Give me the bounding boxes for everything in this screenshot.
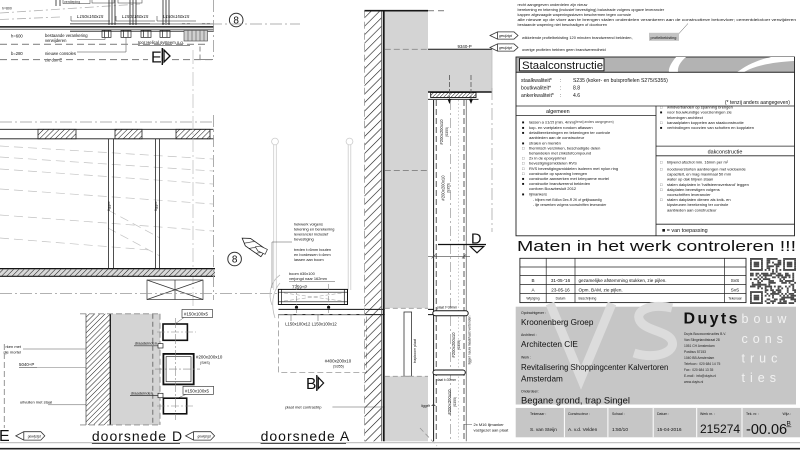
svg-text:B: B	[306, 376, 316, 393]
svg-text:bouw: bouw	[742, 312, 792, 326]
svg-text:ligger: ligger	[153, 200, 158, 210]
svg-text:www.duyts.nl: www.duyts.nl	[684, 380, 704, 384]
svg-text:#200x200x10: #200x200x10	[439, 119, 444, 145]
svg-text:rken met: rken met	[5, 344, 21, 349]
svg-text:■ = van toepassing: ■ = van toepassing	[662, 228, 708, 234]
svg-text:S. van Steijn: S. van Steijn	[530, 427, 557, 433]
svg-text:(tenzij anders aangegeven): (tenzij anders aangegeven)	[575, 120, 614, 124]
svg-text:doorsnede A: doorsnede A	[261, 428, 351, 444]
svg-text:Architect :: Architect :	[521, 333, 537, 337]
svg-text:#200x200x10: #200x200x10	[447, 389, 452, 415]
svg-text:9340-P: 9340-P	[458, 44, 472, 49]
svg-text:uitvullen met staal: uitvullen met staal	[20, 400, 52, 405]
svg-text:S235 (koker- en buisprofielen: S235 (koker- en buisprofielen S275/S355)	[573, 78, 668, 84]
svg-text:Tekenaar: Tekenaar	[728, 297, 742, 301]
svg-text:B: B	[531, 278, 534, 283]
svg-text:Beschrijving: Beschrijving	[579, 297, 597, 301]
svg-text:Architecten CIE: Architecten CIE	[521, 340, 578, 349]
svg-text:doorsnede D: doorsnede D	[92, 428, 183, 444]
svg-text:Tek. nr. :: Tek. nr. :	[746, 412, 759, 416]
svg-text:Schaal :: Schaal :	[612, 412, 625, 416]
svg-text:Postbus 57153: Postbus 57153	[684, 350, 706, 354]
svg-text:L150x150x15: L150x150x15	[163, 14, 190, 19]
svg-text:L150x100x12: L150x100x12	[285, 322, 311, 327]
svg-text:verbindingen voorzien van scho: verbindingen voorzien van schotten en ko…	[667, 125, 754, 130]
svg-text:h=800: h=800	[2, 7, 12, 11]
svg-text:algemeen: algemeen	[546, 109, 570, 115]
svg-text:- lije verwerken volgens voors: - lije verwerken volgens voorschriften l…	[533, 203, 607, 207]
svg-text:Van Slingelandtstraat 28: Van Slingelandtstraat 28	[684, 338, 720, 342]
svg-text:Telefoon : 020 684 14 75: Telefoon : 020 684 14 75	[684, 362, 720, 366]
svg-text:verwijderen: verwijderen	[45, 38, 67, 43]
svg-text:SvS: SvS	[731, 278, 739, 283]
svg-text:dakconstructie: dakconstructie	[708, 150, 743, 156]
svg-text:Datum :: Datum :	[657, 412, 669, 416]
svg-text::: :	[560, 86, 561, 92]
svg-text:1:50/10: 1:50/10	[612, 427, 628, 433]
svg-text:lassen a ≥1/2t (min. 4mm): lassen a ≥1/2t (min. 4mm)	[529, 119, 576, 124]
svg-text:Duyts: Duyts	[684, 311, 740, 328]
svg-text:8: 8	[232, 255, 238, 266]
svg-text:1040 BB Amsterdam: 1040 BB Amsterdam	[684, 356, 714, 360]
svg-text:ligger nauw maat/vast verbinde: ligger nauw maat/vast verbinden	[468, 315, 472, 364]
svg-text:gezamelijke afstemming stukken: gezamelijke afstemming stukken, zie pijl…	[579, 278, 667, 283]
svg-text:Kroonenberg Groep: Kroonenberg Groep	[521, 318, 594, 327]
svg-text:overige profielen hebben geen: overige profielen hebben geen brandweren…	[522, 47, 606, 52]
svg-text:- blijven met Edilon Dex-R 2K: - blijven met Edilon Dex-R 2K of gelijkw…	[533, 198, 602, 202]
svg-text:plaat t=30mm: plaat t=30mm	[436, 378, 456, 382]
svg-text:(S355): (S355)	[333, 365, 344, 369]
svg-text:plaat met contrastrip: plaat met contrastrip	[285, 405, 322, 410]
svg-text:(S355): (S355)	[447, 183, 451, 193]
svg-text:wikkelende profielbekisting 12: wikkelende profielbekisting 120 minuten …	[522, 35, 633, 40]
svg-text:Datum: Datum	[556, 297, 566, 301]
svg-text:Staalconstructie: Staalconstructie	[522, 60, 603, 72]
svg-text:blijvend afschot min. 16mm per: blijvend afschot min. 16mm per m²	[667, 160, 729, 165]
svg-text:bestaande wapening niet bescha: bestaande wapening niet beschadigen of d…	[518, 22, 608, 27]
svg-text:-00.06: -00.06	[746, 422, 787, 438]
svg-text:Constructeur :: Constructeur :	[568, 412, 590, 416]
svg-text:5040+P: 5040+P	[19, 362, 34, 367]
svg-text:Duyts Bouwconstructies B.V.: Duyts Bouwconstructies B.V.	[684, 332, 726, 336]
svg-text:215274: 215274	[700, 422, 740, 436]
svg-text:aanbieden aan constructeur: aanbieden aan constructeur	[667, 207, 717, 212]
svg-text:Werk nr. :: Werk nr. :	[700, 412, 715, 416]
svg-text:Revitalisering Shoppingcenter: Revitalisering Shoppingcenter Kalvertore…	[521, 363, 668, 372]
svg-text:gewijzigd: gewijzigd	[198, 435, 211, 439]
svg-text:L150x100x12: L150x100x12	[312, 322, 338, 327]
svg-text:4.6: 4.6	[573, 93, 580, 99]
svg-text:lijmankers: lijmankers	[529, 191, 547, 196]
svg-text:#200x200x10: #200x200x10	[451, 332, 456, 358]
svg-text:15-04-2016: 15-04-2016	[657, 427, 682, 433]
svg-text:nieuwe consoles: nieuwe consoles	[45, 51, 76, 56]
svg-text:profielbekisting: profielbekisting	[651, 35, 677, 40]
svg-text:E-mail : info@duyts.nl: E-mail : info@duyts.nl	[684, 374, 716, 378]
svg-text:lassen aan boom: lassen aan boom	[294, 257, 324, 262]
svg-text:verjongd naar 162mm: verjongd naar 162mm	[289, 276, 327, 281]
svg-text:Opm. BAM, zie pijlen.: Opm. BAM, zie pijlen.	[579, 287, 623, 292]
svg-text:Begane grond, trap Singel: Begane grond, trap Singel	[521, 395, 630, 406]
svg-text:Fax : 020 684 13 35: Fax : 020 684 13 35	[684, 368, 713, 372]
svg-text:Maten in het werk controleren: Maten in het werk controleren !!!	[517, 239, 796, 255]
svg-text:(S355): (S355)	[457, 340, 461, 350]
svg-text:8.8: 8.8	[573, 86, 580, 92]
svg-text:vastgezet aan plaat: vastgezet aan plaat	[474, 428, 510, 433]
svg-text:31-05-'16: 31-05-'16	[551, 278, 571, 283]
svg-text:Wijz.:: Wijz.:	[782, 412, 791, 416]
svg-text:L150x150x15: L150x150x15	[77, 14, 104, 19]
svg-text:23-05-16: 23-05-16	[551, 287, 570, 292]
svg-text:truc: truc	[742, 352, 783, 366]
svg-text:ankerkwaliteit*: ankerkwaliteit*	[521, 93, 554, 99]
svg-text::: :	[560, 78, 561, 84]
svg-text:draadeinden: draadeinden	[131, 390, 153, 395]
svg-text:#400x200x10: #400x200x10	[325, 359, 352, 364]
svg-text:rije mortel: rije mortel	[3, 350, 21, 355]
svg-text:Tekenaar :: Tekenaar :	[530, 412, 546, 416]
svg-text:h=600: h=600	[11, 33, 23, 38]
svg-text:E: E	[151, 50, 162, 67]
svg-text::: :	[560, 93, 561, 99]
svg-text:draadeinden: draadeinden	[135, 341, 157, 346]
svg-text:gewijzigd: gewijzigd	[28, 435, 41, 439]
svg-text:(SHS): (SHS)	[200, 361, 210, 365]
svg-text:#200x200x10: #200x200x10	[196, 355, 223, 360]
svg-text:#150x100x5: #150x100x5	[184, 312, 208, 317]
svg-text:plaat t=30mm: plaat t=30mm	[437, 306, 457, 310]
svg-text:gewijzigd: gewijzigd	[499, 46, 512, 50]
svg-text:(* tenzij anders aangegeven): (* tenzij anders aangegeven)	[725, 100, 790, 106]
svg-text:ligger: ligger	[106, 200, 111, 210]
svg-text:A. v.d. Velden: A. v.d. Velden	[568, 427, 598, 433]
svg-text:gewijzigd: gewijzigd	[499, 34, 512, 38]
svg-text:staalkwaliteit*: staalkwaliteit*	[521, 78, 552, 84]
svg-text:1051 CH Amsterdam: 1051 CH Amsterdam	[684, 344, 715, 348]
svg-text:(S355): (S355)	[445, 127, 449, 137]
svg-text:L150x150x15: L150x150x15	[122, 14, 149, 19]
svg-text:Wijziging: Wijziging	[526, 297, 539, 301]
svg-text:Amsterdam: Amsterdam	[521, 375, 563, 384]
svg-text:bevestiging: bevestiging	[294, 237, 314, 242]
svg-text:cons: cons	[742, 332, 788, 346]
svg-text:B: B	[787, 421, 791, 428]
svg-text:b=280: b=280	[11, 51, 23, 56]
svg-text:8: 8	[233, 16, 239, 27]
svg-text:ligger: ligger	[421, 404, 431, 408]
svg-text:#150x100x5: #150x100x5	[185, 388, 209, 393]
svg-text:SvS: SvS	[731, 287, 739, 292]
svg-text:ties: ties	[742, 371, 781, 385]
svg-text:Opdrachtgever :: Opdrachtgever :	[521, 311, 546, 315]
svg-text:(S355): (S355)	[453, 397, 457, 407]
svg-text:Werk :: Werk :	[521, 356, 531, 360]
svg-text:trapboom plaat: trapboom plaat	[413, 339, 417, 363]
svg-text:2x M16 lijmanker: 2x M16 lijmanker	[474, 422, 505, 427]
svg-text:boutkwaliteit*: boutkwaliteit*	[521, 86, 551, 92]
svg-text:#200x200x10: #200x200x10	[441, 175, 446, 201]
svg-text:Onderdeel :: Onderdeel :	[521, 390, 539, 394]
